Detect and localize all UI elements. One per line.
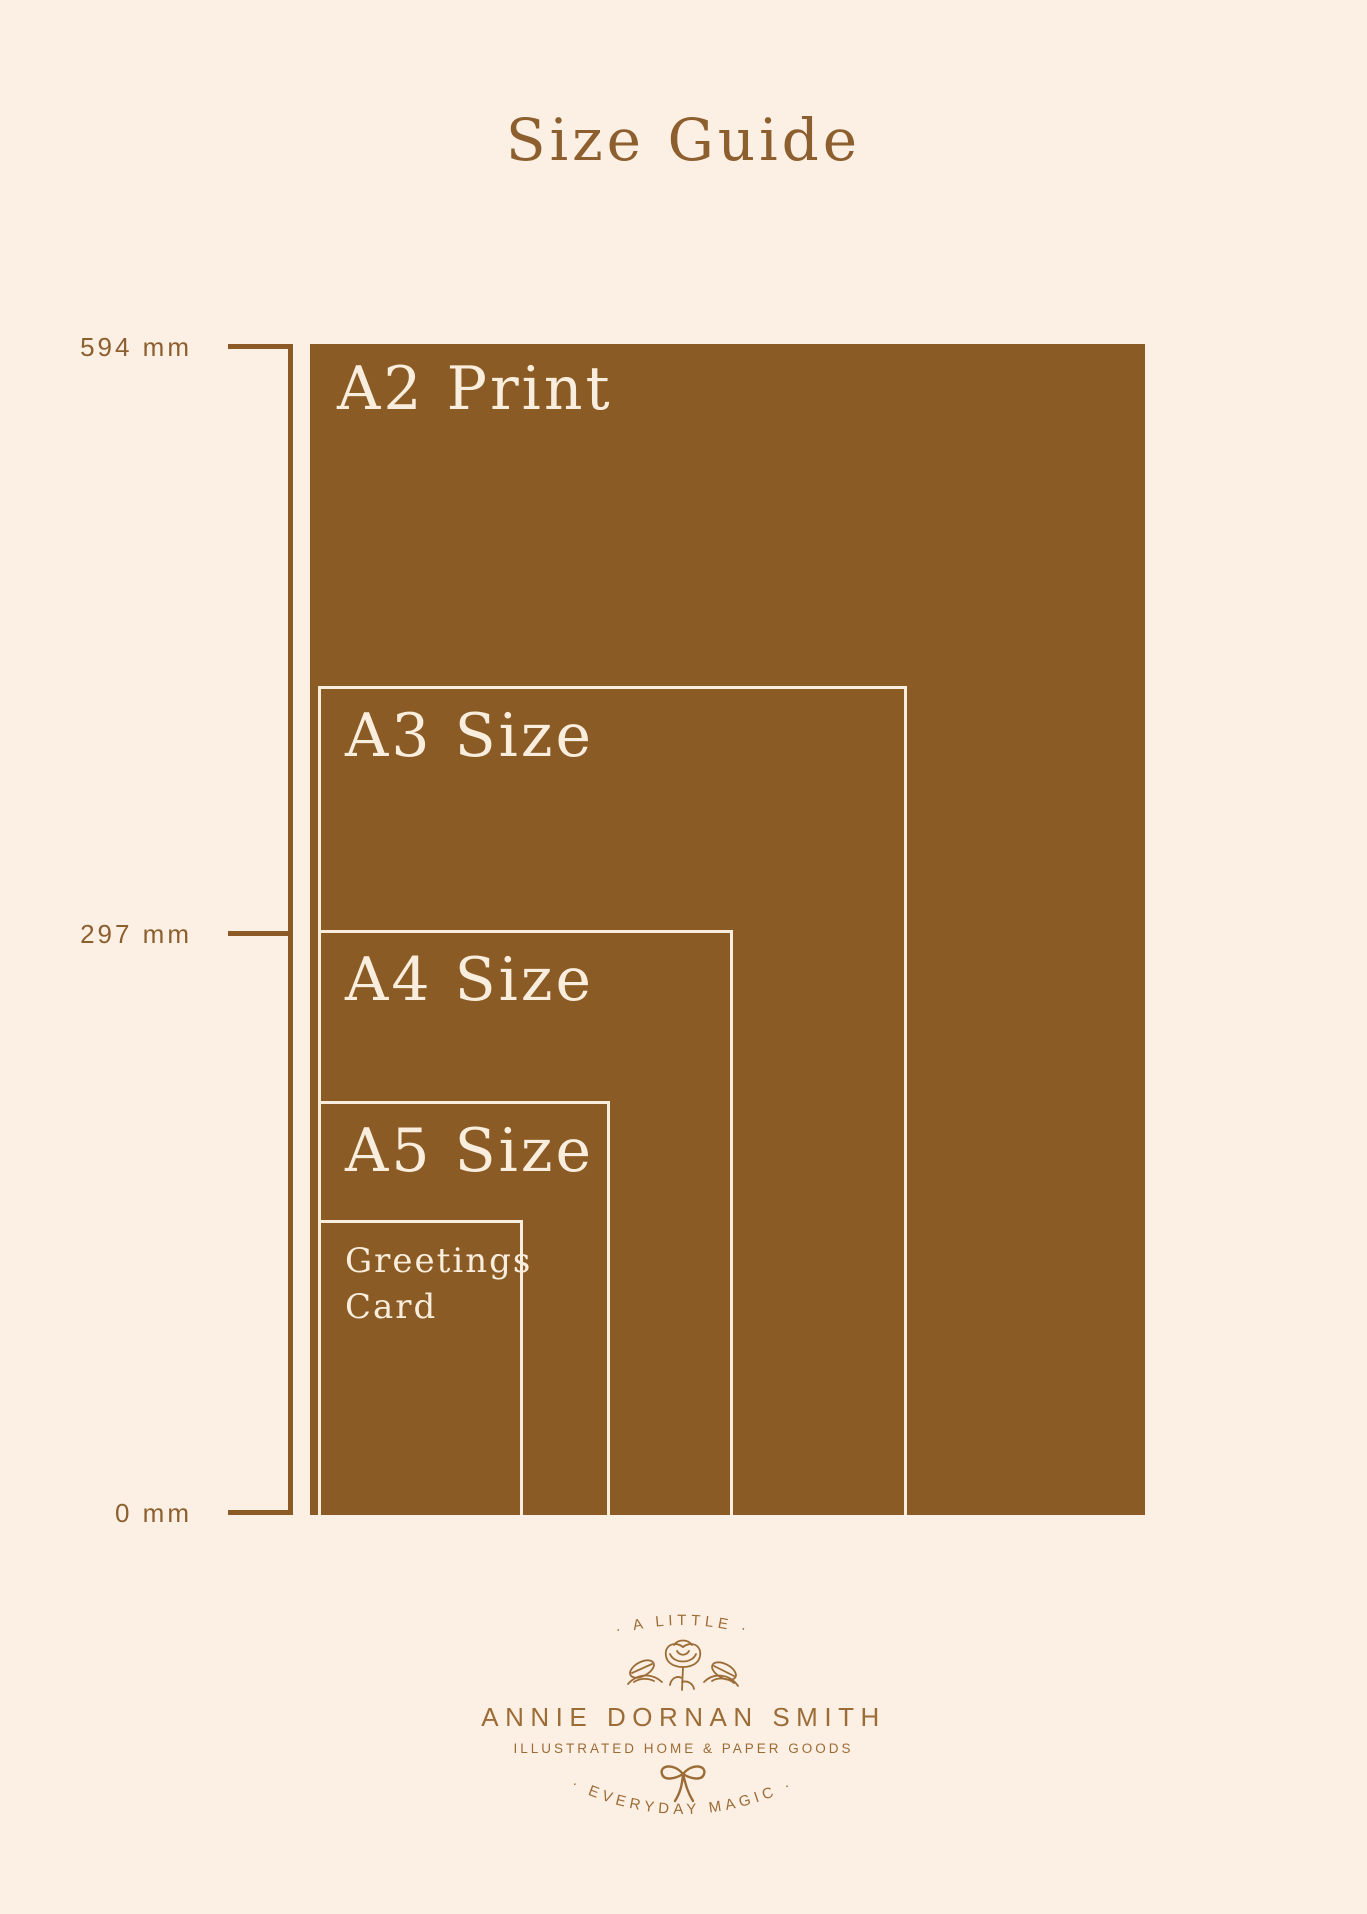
rect-greetings-card-label: Greetings Card (321, 1223, 520, 1331)
rect-greetings-card: Greetings Card (318, 1220, 523, 1515)
axis-label-297mm: 297 mm (20, 919, 192, 949)
axis-tick-297mm (228, 931, 293, 936)
axis-vertical-line (288, 344, 293, 1515)
rect-a4-label: A4 Size (321, 933, 730, 1013)
arc-text-a-little: · A LITTLE · (533, 1596, 833, 1660)
arc-bottom-label: · EVERYDAY MAGIC · (569, 1775, 797, 1818)
axis-label-594mm: 594 mm (20, 332, 192, 362)
svg-text:· A LITTLE ·: · A LITTLE · (613, 1612, 752, 1639)
axis-label-0mm: 0 mm (20, 1498, 192, 1528)
bow-icon (653, 1760, 713, 1804)
arc-top-label: · A LITTLE · (613, 1612, 752, 1639)
brand-name: ANNIE DORNAN SMITH (0, 1702, 1367, 1732)
page-title: Size Guide (0, 104, 1367, 176)
axis-tick-0mm (228, 1510, 293, 1515)
brand-tagline: ILLUSTRATED HOME & PAPER GOODS (0, 1740, 1367, 1758)
rect-a2-label: A2 Print (310, 344, 1145, 422)
rect-a3-label: A3 Size (321, 689, 904, 769)
svg-text:· EVERYDAY MAGIC ·: · EVERYDAY MAGIC · (569, 1775, 797, 1818)
axis-tick-594mm (228, 344, 293, 349)
rect-a5-label: A5 Size (321, 1104, 607, 1184)
arc-text-everyday-magic: · EVERYDAY MAGIC · (533, 1770, 833, 1850)
size-guide-page: Size Guide 594 mm 297 mm 0 mm A2 Print A… (0, 0, 1367, 1914)
flowers-icon (608, 1638, 758, 1702)
rect-a2-print: A2 Print A3 Size A4 Size A5 Size Greetin… (310, 344, 1145, 1515)
